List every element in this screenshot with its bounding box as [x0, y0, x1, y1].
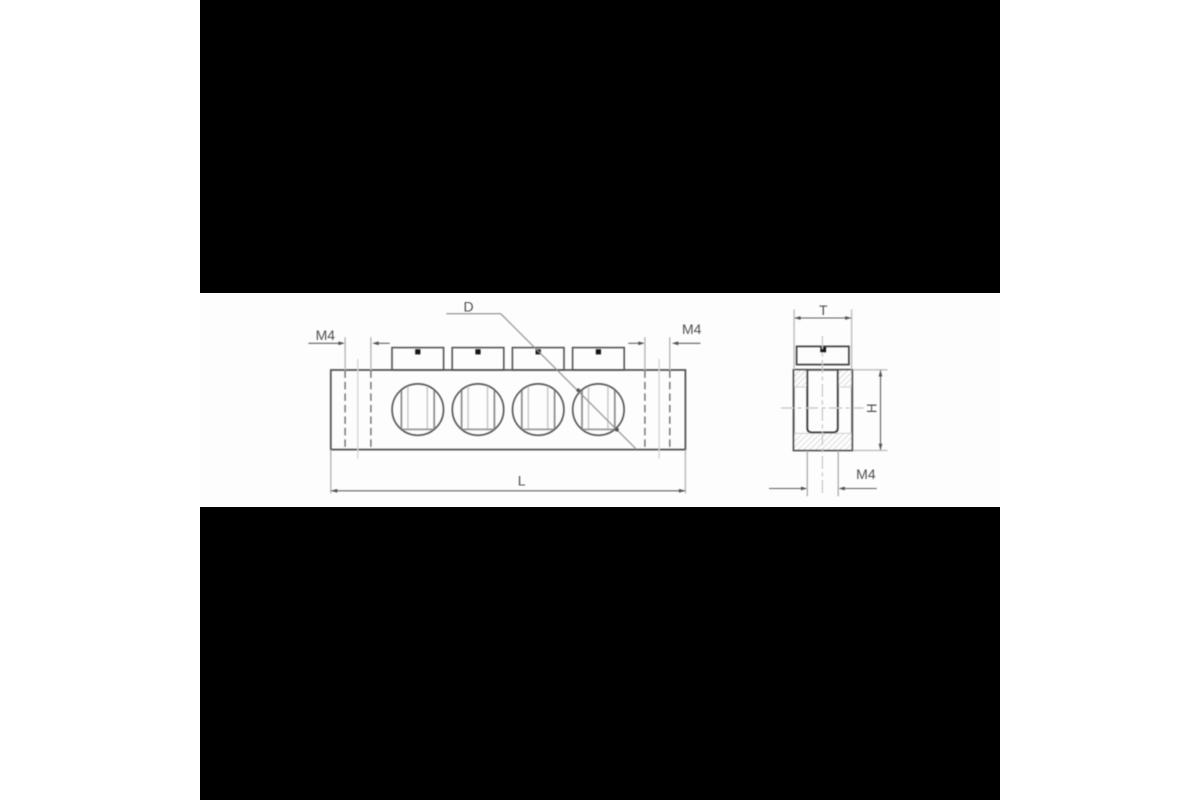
svg-text:H: H [865, 403, 880, 413]
svg-text:T: T [819, 303, 827, 318]
svg-text:M4: M4 [856, 466, 876, 482]
svg-text:D: D [464, 299, 474, 315]
svg-text:M4: M4 [682, 321, 702, 337]
svg-text:L: L [518, 473, 526, 489]
svg-text:M4: M4 [316, 327, 336, 343]
